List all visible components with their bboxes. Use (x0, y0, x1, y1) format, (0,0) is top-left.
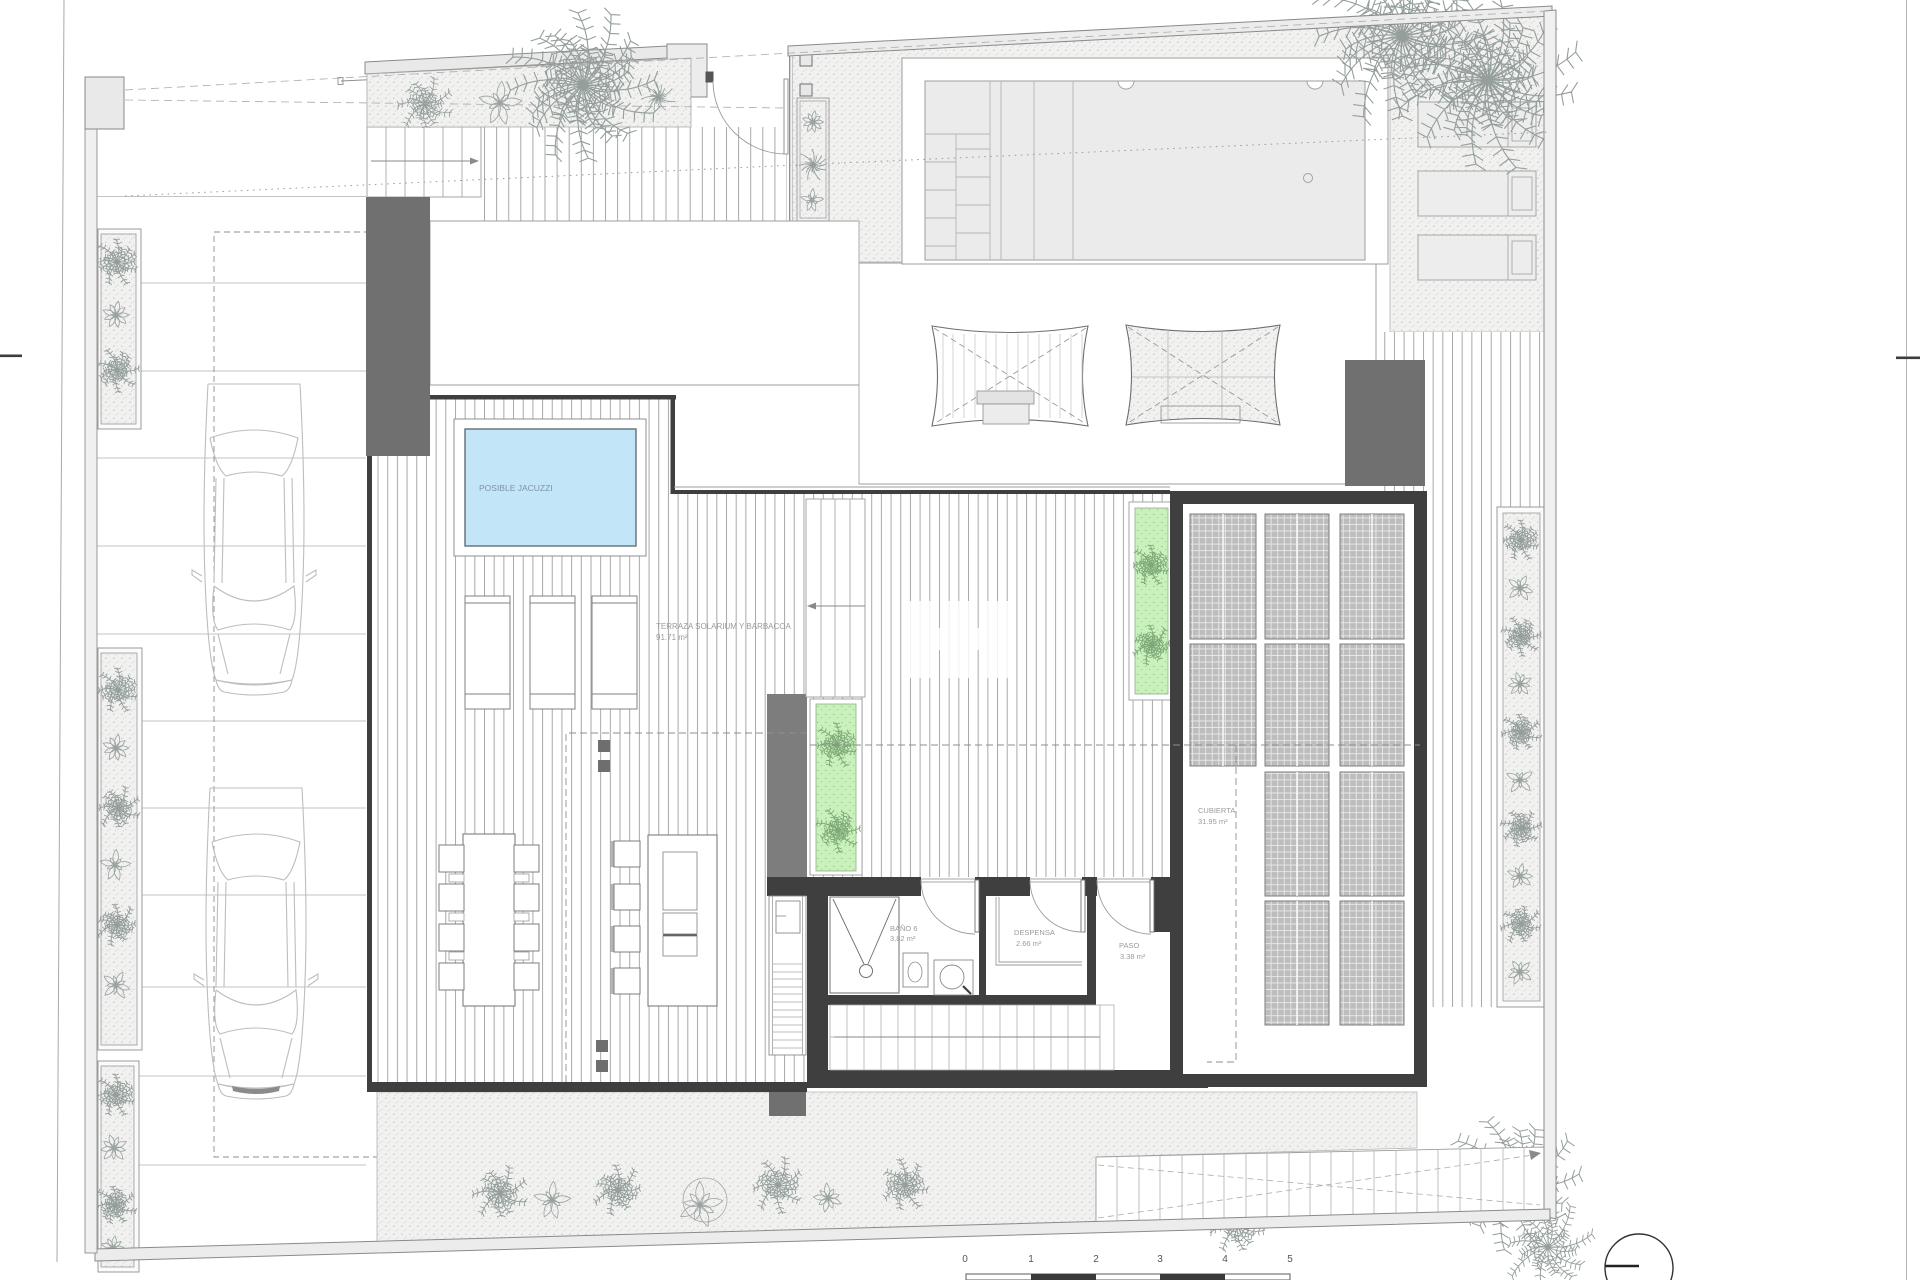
svg-text:POSIBLE JACUZZI: POSIBLE JACUZZI (479, 483, 553, 493)
svg-text:31.95 m²: 31.95 m² (1198, 817, 1228, 826)
svg-text:4: 4 (1222, 1254, 1228, 1265)
svg-text:CUBIERTA: CUBIERTA (1198, 806, 1235, 815)
svg-text:3.38 m²: 3.38 m² (1120, 952, 1146, 961)
svg-text:2: 2 (1093, 1254, 1099, 1265)
svg-text:TERRAZA SOLARIUM Y BARBACOA: TERRAZA SOLARIUM Y BARBACOA (656, 622, 792, 631)
svg-text:PASO: PASO (1119, 941, 1139, 950)
svg-text:3.82 m²: 3.82 m² (890, 934, 916, 943)
svg-text:91.71 m²: 91.71 m² (656, 633, 688, 642)
svg-text:5: 5 (1287, 1254, 1293, 1265)
svg-text:BAÑO 6: BAÑO 6 (890, 924, 918, 933)
svg-text:0: 0 (962, 1254, 968, 1265)
svg-text:2.66 m²: 2.66 m² (1016, 939, 1042, 948)
svg-text:1: 1 (1028, 1254, 1034, 1265)
svg-text:DESPENSA: DESPENSA (1014, 928, 1055, 937)
svg-text:3: 3 (1157, 1254, 1163, 1265)
